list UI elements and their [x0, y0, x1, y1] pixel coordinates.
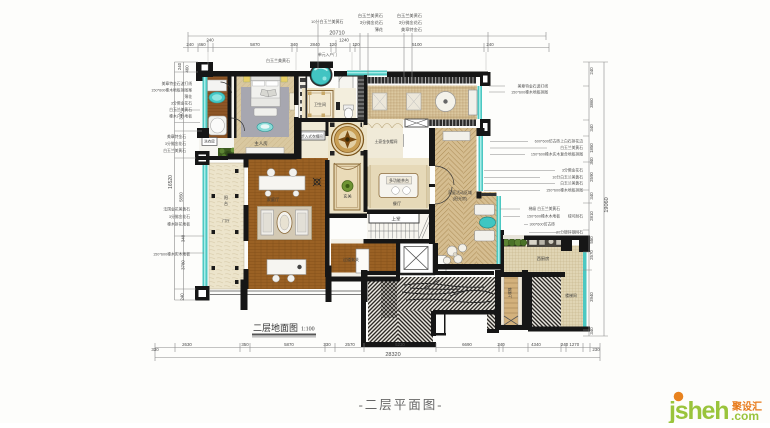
svg-text:340: 340: [589, 327, 594, 335]
svg-text:梯级 白玉兰美黄石: 梯级 白玉兰美黄石: [529, 206, 561, 211]
svg-text:2840: 2840: [310, 42, 320, 47]
svg-text:4340: 4340: [531, 342, 541, 347]
svg-text:.com: .com: [731, 409, 759, 423]
svg-text:台: 台: [224, 200, 228, 206]
svg-text:3分佛金花石: 3分佛金花石: [171, 101, 192, 106]
svg-text:3分佛金花石: 3分佛金花石: [169, 214, 190, 219]
svg-text:洗衣房: 洗衣房: [204, 139, 215, 144]
svg-text:240: 240: [186, 42, 194, 47]
svg-text:薄花: 薄花: [375, 26, 383, 33]
svg-text:薄花: 薄花: [184, 94, 192, 99]
svg-text:3分佛金花石: 3分佛金花石: [399, 19, 422, 26]
svg-text:300*600仿古砖: 300*600仿古砖: [529, 222, 555, 227]
svg-text:橡木拼花地板: 橡木拼花地板: [167, 222, 190, 227]
svg-text:120: 120: [352, 42, 360, 47]
svg-text:240: 240: [589, 67, 594, 75]
svg-text:主人房: 主人房: [254, 140, 268, 147]
svg-text:1:100: 1:100: [301, 327, 315, 333]
svg-text:白玉兰美黄石: 白玉兰美黄石: [358, 12, 383, 19]
svg-text:240 1270: 240 1270: [561, 342, 580, 347]
svg-text:法国金花美黄石: 法国金花美黄石: [163, 207, 190, 212]
svg-text:460: 460: [198, 42, 206, 47]
svg-text:150*600橡木地板拼图: 150*600橡木地板拼图: [546, 188, 583, 193]
svg-text:白玉兰美黄石: 白玉兰美黄石: [560, 181, 583, 186]
svg-text:240: 240: [180, 293, 185, 301]
svg-text:340: 340: [290, 42, 298, 47]
svg-text:1850: 1850: [589, 143, 594, 153]
svg-text:上堂: 上堂: [392, 216, 401, 222]
svg-text:(阳光房): (阳光房): [453, 195, 468, 201]
svg-text:单元入户门: 单元入户门: [318, 52, 337, 57]
svg-text:240: 240: [497, 342, 505, 347]
svg-text:白玉兰美黄石: 白玉兰美黄石: [169, 107, 192, 112]
svg-text:340: 340: [589, 157, 594, 165]
svg-text:5100: 5100: [412, 42, 422, 47]
svg-text:白玉兰美黄石: 白玉兰美黄石: [266, 57, 290, 63]
svg-text:白玉兰美黄石: 白玉兰美黄石: [397, 12, 422, 19]
svg-text:5870: 5870: [284, 342, 294, 347]
svg-text:过道玄关: 过道玄关: [343, 256, 359, 262]
svg-text:5230: 5230: [395, 342, 405, 347]
svg-text:绿可耐石: 绿可耐石: [568, 214, 583, 219]
svg-text:340: 340: [589, 192, 594, 200]
svg-text:门厅: 门厅: [222, 218, 230, 223]
svg-text:白玉兰美黄石: 白玉兰美黄石: [163, 148, 186, 153]
svg-text:美章特金石: 美章特金石: [167, 134, 186, 139]
svg-text:5870: 5870: [250, 42, 260, 47]
svg-text:玄关: 玄关: [343, 193, 351, 200]
svg-text:20分镀锌钢网石: 20分镀锌钢网石: [556, 230, 583, 235]
svg-text:多功能茶台: 多功能茶台: [389, 177, 409, 183]
svg-text:5850: 5850: [179, 192, 184, 202]
svg-text:1240: 1240: [339, 38, 349, 43]
svg-text:28320: 28320: [385, 352, 400, 358]
svg-text:10分白玉兰美黄石: 10分白玉兰美黄石: [552, 175, 583, 180]
svg-text:600*600仿古砖上白石拼花边: 600*600仿古砖上白石拼花边: [535, 139, 584, 144]
svg-text:西厨房: 西厨房: [537, 255, 550, 262]
svg-text:2570: 2570: [345, 342, 355, 347]
svg-text:美章特金石波打线: 美章特金石波打线: [518, 84, 549, 89]
svg-text:20710: 20710: [329, 31, 344, 37]
svg-text:3分佛金花石: 3分佛金花石: [562, 168, 583, 173]
svg-text:土豪金衣帽间: 土豪金衣帽间: [375, 139, 398, 144]
svg-text:美章特金石波打线: 美章特金石波打线: [162, 81, 193, 86]
svg-text:上楼梯: 上楼梯: [507, 287, 512, 298]
svg-text:150*600橡木地板拼图案: 150*600橡木地板拼图案: [151, 88, 192, 93]
svg-text:240: 240: [177, 62, 182, 70]
svg-text:150*600橡木实木复合地板拼图: 150*600橡木实木复合地板拼图: [531, 152, 583, 157]
svg-text:阳: 阳: [224, 194, 228, 200]
svg-text:150*600橡木地板拼图: 150*600橡木地板拼图: [511, 90, 548, 95]
svg-text:10分白玉兰美黄石: 10分白玉兰美黄石: [311, 18, 343, 24]
svg-text:白玉兰美黄石: 白玉兰美黄石: [560, 145, 583, 150]
svg-text:3780: 3780: [181, 260, 186, 270]
svg-text:16520: 16520: [168, 175, 174, 189]
svg-text:460: 460: [185, 65, 190, 73]
svg-text:卫生间: 卫生间: [314, 101, 326, 107]
svg-text:240: 240: [206, 38, 214, 43]
svg-text:橡木户外地板: 橡木户外地板: [169, 114, 192, 119]
svg-text:2630: 2630: [182, 342, 192, 347]
svg-text:350: 350: [241, 342, 249, 347]
svg-text:240: 240: [486, 42, 494, 47]
svg-text:3860: 3860: [589, 98, 594, 108]
svg-text:家庭厅: 家庭厅: [267, 196, 280, 203]
svg-text:340: 340: [589, 124, 594, 132]
svg-text:340: 340: [181, 234, 186, 242]
svg-text:3分佛金花石: 3分佛金花石: [165, 141, 186, 146]
svg-text:美章特金石: 美章特金石: [401, 26, 422, 33]
svg-text:330: 330: [323, 342, 331, 347]
svg-text:楼梯间: 楼梯间: [565, 293, 577, 298]
svg-text:2570: 2570: [589, 250, 594, 260]
svg-text:餐厅: 餐厅: [393, 200, 401, 207]
svg-text:330: 330: [151, 347, 159, 352]
svg-text:家庭活动区域: 家庭活动区域: [448, 189, 472, 195]
svg-text:230: 230: [592, 347, 600, 352]
svg-text:550: 550: [589, 236, 594, 244]
svg-text:3940: 3940: [589, 292, 594, 302]
svg-text:3分佛金花石: 3分佛金花石: [360, 19, 383, 26]
svg-text:2810: 2810: [589, 211, 594, 221]
svg-text:步入式衣帽间: 步入式衣帽间: [301, 134, 323, 139]
svg-text:2590: 2590: [589, 172, 594, 182]
svg-text:150*600橡木实木地板: 150*600橡木实木地板: [153, 252, 190, 257]
svg-text:二层地面图: 二层地面图: [253, 322, 298, 333]
svg-text:120: 120: [329, 42, 337, 47]
svg-text:6690: 6690: [462, 342, 472, 347]
svg-text:150*600橡木木地板: 150*600橡木木地板: [527, 214, 560, 219]
svg-text:19060: 19060: [604, 197, 610, 212]
svg-text:-二层平面图-: -二层平面图-: [359, 398, 444, 412]
